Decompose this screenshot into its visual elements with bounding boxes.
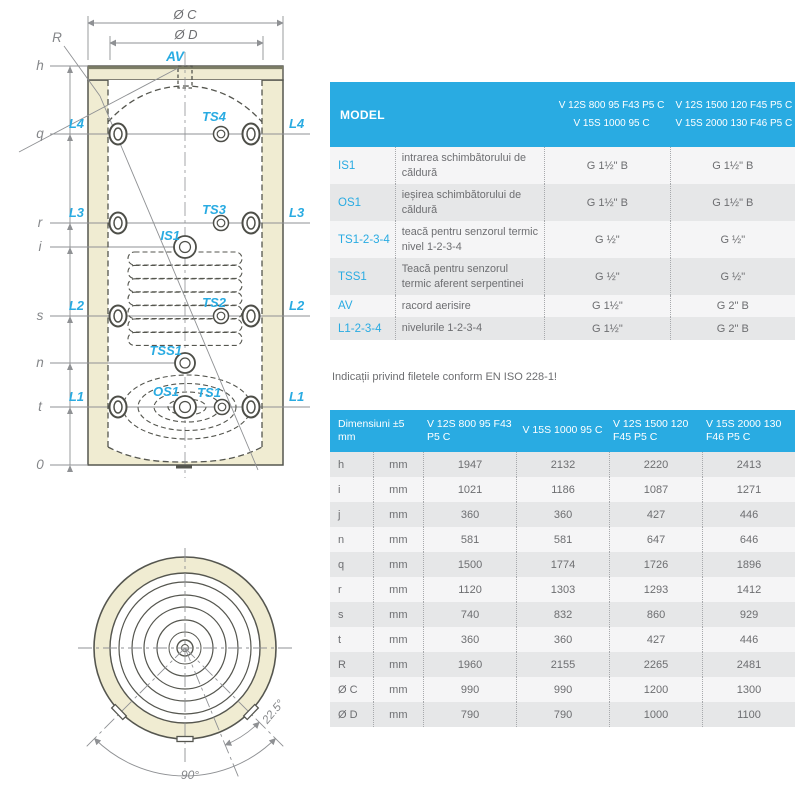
dim-value: 647 (609, 527, 702, 552)
dim-letter: h (330, 452, 373, 477)
angle-22-5-label: 22.5° (260, 698, 287, 727)
diameter-c-label: Ø C (172, 7, 197, 22)
dim-letter: Ø D (330, 702, 373, 727)
port-thread-1: G ½" (544, 258, 669, 295)
port-code: TSS1 (330, 258, 395, 295)
dim-value: 427 (609, 502, 702, 527)
dim-letter: r (330, 577, 373, 602)
model-header-col1: V 12S 800 95 F43 P5 C V 15S 1000 95 C (550, 82, 672, 147)
port-thread-1: G 1½" (544, 295, 669, 317)
model-col2-line2: V 15S 2000 130 F46 P5 C (675, 118, 792, 129)
dim-value: 1293 (609, 577, 702, 602)
port-thread-1: G 1½" B (544, 184, 669, 221)
dim-row-j: j mm 360 360 427 446 (330, 502, 795, 527)
av-port-label: AV (165, 49, 185, 64)
dim-unit: mm (373, 577, 423, 602)
height-dimension-letters: h q r i s n t 0 (36, 58, 44, 472)
port-code: TS1-2-3-4 (330, 221, 395, 258)
dim-letter: s (330, 602, 373, 627)
l1-left-label: L1 (69, 389, 84, 404)
dim-zero: 0 (36, 457, 44, 472)
dim-value: 1960 (423, 652, 516, 677)
dim-unit: mm (373, 652, 423, 677)
tank-foot (176, 465, 192, 469)
port-description: intrarea schimbătorului de căldură (395, 147, 544, 184)
dim-row-t: t mm 360 360 427 446 (330, 627, 795, 652)
port-thread-1: G 1½" (544, 317, 669, 340)
port-description: ieșirea schimbătorului de căldură (395, 184, 544, 221)
dim-letter: R (330, 652, 373, 677)
table-row-is1: IS1 intrarea schimbătorului de căldură G… (330, 147, 795, 184)
port-code: AV (330, 295, 395, 317)
l3-right-label: L3 (289, 205, 305, 220)
dim-row-n: n mm 581 581 647 646 (330, 527, 795, 552)
dim-unit: mm (373, 627, 423, 652)
model-header-label: MODEL (330, 82, 550, 147)
dim-value: 2481 (702, 652, 795, 677)
dim-t: t (38, 399, 43, 414)
dim-row-r: r mm 1120 1303 1293 1412 (330, 577, 795, 602)
dimensions-title: Dimensiuni ±5 mm (330, 410, 423, 452)
table-row-os1: OS1 ieșirea schimbătorului de căldură G … (330, 184, 795, 221)
dim-value: 1186 (516, 477, 609, 502)
ts4-label: TS4 (202, 109, 227, 124)
dimensions-table-header: Dimensiuni ±5 mm V 12S 800 95 F43 P5 C V… (330, 410, 795, 452)
port-description: Teacă pentru senzorul termic aferent ser… (395, 258, 544, 295)
dim-value: 1412 (702, 577, 795, 602)
dim-value: 1021 (423, 477, 516, 502)
dim-row-s: s mm 740 832 860 929 (330, 602, 795, 627)
dim-value: 1500 (423, 552, 516, 577)
dim-value: 929 (702, 602, 795, 627)
model-col1-line1: V 12S 800 95 F43 P5 C (559, 100, 665, 111)
thread-standard-note: Indicații privind filetele conform EN IS… (332, 371, 792, 383)
l3-left-label: L3 (69, 205, 85, 220)
table-row-av: AV racord aerisire G 1½" G 2" B (330, 295, 795, 317)
l4-right-label: L4 (289, 116, 305, 131)
dim-value: 2413 (702, 452, 795, 477)
l2-right-label: L2 (289, 298, 305, 313)
model-spec-table: MODEL V 12S 800 95 F43 P5 C V 15S 1000 9… (330, 82, 795, 340)
model-table-header: MODEL V 12S 800 95 F43 P5 C V 15S 1000 9… (330, 82, 795, 147)
dim-value: 740 (423, 602, 516, 627)
dim-value: 1120 (423, 577, 516, 602)
l1-right-label: L1 (289, 389, 304, 404)
port-description: teacă pentru senzorul termic nivel 1-2-3… (395, 221, 544, 258)
tss1-label: TSS1 (149, 343, 182, 358)
model-col1-line2: V 15S 1000 95 C (573, 118, 649, 129)
dim-value: 790 (423, 702, 516, 727)
ts2-label: TS2 (202, 295, 227, 310)
dim-col-4: V 15S 2000 130 F46 P5 C (702, 410, 795, 452)
dim-letter: i (330, 477, 373, 502)
dim-h: h (36, 58, 44, 73)
dim-value: 790 (516, 702, 609, 727)
l2-left-label: L2 (69, 298, 85, 313)
ts1-label: TS1 (197, 385, 221, 400)
dim-value: 2220 (609, 452, 702, 477)
tank-front-view: Ø C Ø D AV R h q r i s n t 0 L4 L4 L3 L3… (19, 7, 310, 478)
dim-value: 1000 (609, 702, 702, 727)
dim-unit: mm (373, 677, 423, 702)
port-thread-2: G 1½" B (670, 147, 795, 184)
dim-row-R: R mm 1960 2155 2265 2481 (330, 652, 795, 677)
dim-letter: q (330, 552, 373, 577)
dim-letter: n (330, 527, 373, 552)
dim-value: 2155 (516, 652, 609, 677)
dimensions-table: Dimensiuni ±5 mm V 12S 800 95 F43 P5 C V… (330, 410, 795, 727)
port-thread-2: G 1½" B (670, 184, 795, 221)
l4-left-label: L4 (69, 116, 85, 131)
port-thread-2: G ½" (670, 258, 795, 295)
dim-value: 1774 (516, 552, 609, 577)
port-thread-2: G ½" (670, 221, 795, 258)
is1-label: IS1 (160, 228, 180, 243)
table-row-ts1234: TS1-2-3-4 teacă pentru senzorul termic n… (330, 221, 795, 258)
dim-value: 1896 (702, 552, 795, 577)
dim-unit: mm (373, 602, 423, 627)
dim-value: 446 (702, 502, 795, 527)
dim-row-h: h mm 1947 2132 2220 2413 (330, 452, 795, 477)
dim-unit: mm (373, 527, 423, 552)
port-thread-2: G 2" B (670, 317, 795, 340)
dim-row-q: q mm 1500 1774 1726 1896 (330, 552, 795, 577)
dim-value: 1726 (609, 552, 702, 577)
dim-value: 2132 (516, 452, 609, 477)
port-description: nivelurile 1-2-3-4 (395, 317, 544, 340)
os1-label: OS1 (153, 384, 179, 399)
dim-value: 646 (702, 527, 795, 552)
port-thread-1: G 1½" B (544, 147, 669, 184)
dim-letter: j (330, 502, 373, 527)
port-code: L1-2-3-4 (330, 317, 395, 340)
dim-row-dia-d: Ø D mm 790 790 1000 1100 (330, 702, 795, 727)
table-row-tss1: TSS1 Teacă pentru senzorul termic aferen… (330, 258, 795, 295)
port-thread-1: G ½" (544, 221, 669, 258)
dim-unit: mm (373, 502, 423, 527)
dim-value: 446 (702, 627, 795, 652)
dim-value: 1300 (702, 677, 795, 702)
dim-col-1: V 12S 800 95 F43 P5 C (423, 410, 516, 452)
dim-col-2: V 15S 1000 95 C (516, 410, 609, 452)
dim-letter: t (330, 627, 373, 652)
dim-value: 1303 (516, 577, 609, 602)
dim-s: s (37, 308, 44, 323)
dim-value: 1200 (609, 677, 702, 702)
dim-value: 990 (423, 677, 516, 702)
dim-unit: mm (373, 477, 423, 502)
dim-value: 860 (609, 602, 702, 627)
port-code: OS1 (330, 184, 395, 221)
dim-i: i (39, 239, 43, 254)
radius-label: R (52, 30, 62, 45)
dim-value: 360 (423, 502, 516, 527)
port-description: racord aerisire (395, 295, 544, 317)
angle-90-label: 90° (181, 768, 199, 782)
dim-value: 1087 (609, 477, 702, 502)
dim-value: 581 (423, 527, 516, 552)
model-header-col2: V 12S 1500 120 F45 P5 C V 15S 2000 130 F… (673, 82, 795, 147)
dim-value: 360 (516, 627, 609, 652)
dim-unit: mm (373, 552, 423, 577)
dim-r: r (38, 215, 43, 230)
diameter-d-label: Ø D (173, 27, 197, 42)
dim-value: 990 (516, 677, 609, 702)
dim-value: 581 (516, 527, 609, 552)
dim-unit: mm (373, 452, 423, 477)
dim-row-dia-c: Ø C mm 990 990 1200 1300 (330, 677, 795, 702)
tank-technical-drawing: Ø C Ø D AV R h q r i s n t 0 L4 L4 L3 L3… (0, 0, 330, 804)
dim-q: q (36, 126, 44, 141)
port-code: IS1 (330, 147, 395, 184)
tank-top-view: 22.5° 90° (78, 548, 292, 782)
dim-value: 360 (423, 627, 516, 652)
dim-unit: mm (373, 702, 423, 727)
dim-value: 1100 (702, 702, 795, 727)
dim-col-3: V 12S 1500 120 F45 P5 C (609, 410, 702, 452)
port-thread-2: G 2" B (670, 295, 795, 317)
dim-value: 2265 (609, 652, 702, 677)
dim-value: 360 (516, 502, 609, 527)
dim-value: 1271 (702, 477, 795, 502)
dim-letter: Ø C (330, 677, 373, 702)
model-col2-line1: V 12S 1500 120 F45 P5 C (675, 100, 792, 111)
dim-row-i: i mm 1021 1186 1087 1271 (330, 477, 795, 502)
dim-n: n (36, 355, 44, 370)
table-row-l1234: L1-2-3-4 nivelurile 1-2-3-4 G 1½" G 2" B (330, 317, 795, 340)
dim-value: 832 (516, 602, 609, 627)
dim-value: 1947 (423, 452, 516, 477)
ts3-label: TS3 (202, 202, 227, 217)
dim-value: 427 (609, 627, 702, 652)
